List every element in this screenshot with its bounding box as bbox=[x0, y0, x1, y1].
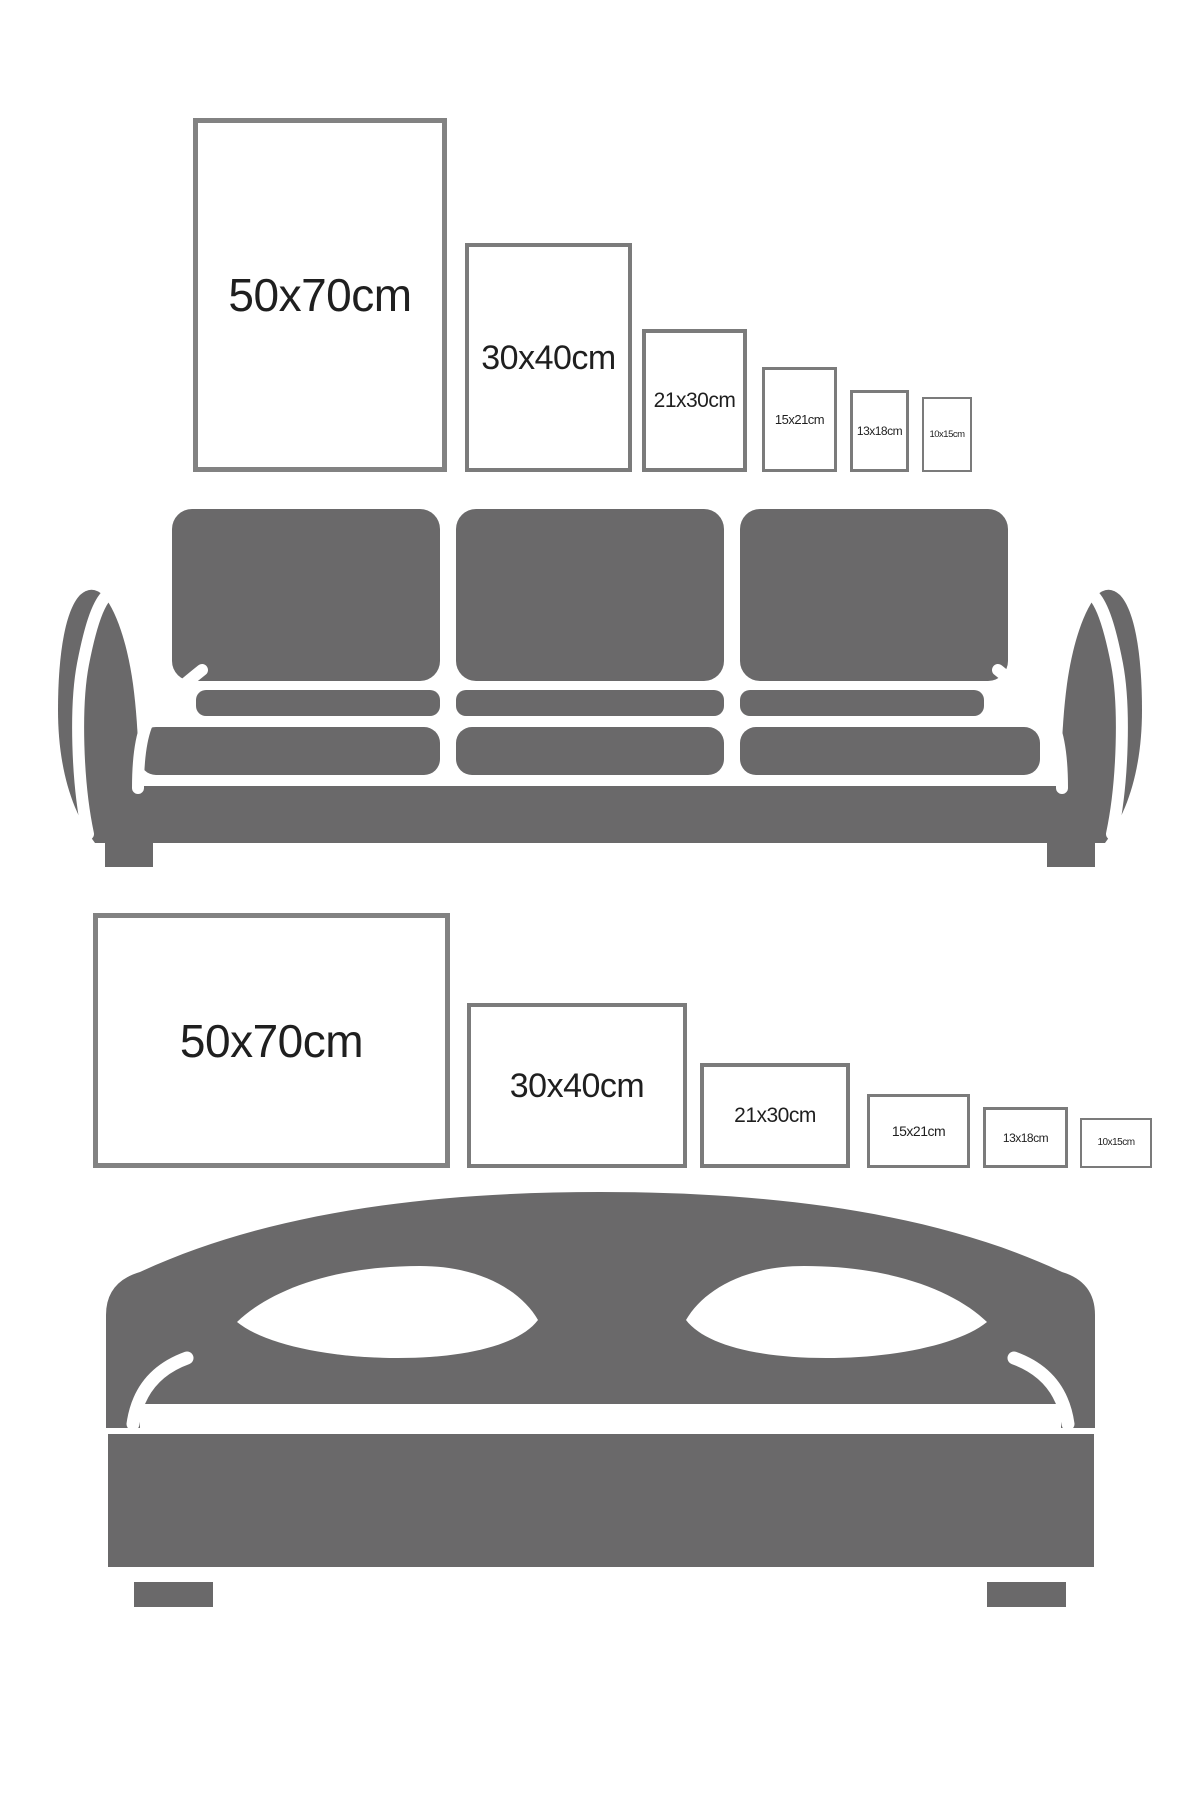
size-frame-10x15-landscape: 10x15cm bbox=[1080, 1118, 1152, 1168]
sofa-deck bbox=[456, 690, 724, 716]
size-frame-10x15-portrait: 10x15cm bbox=[922, 397, 972, 472]
frame-size-label: 13x18cm bbox=[1003, 1132, 1048, 1144]
bed-foot-right bbox=[987, 1582, 1066, 1607]
sofa-back-cushion bbox=[456, 509, 724, 681]
size-frame-30x40-landscape: 30x40cm bbox=[467, 1003, 687, 1168]
frame-size-label: 50x70cm bbox=[228, 272, 411, 318]
frame-size-label: 30x40cm bbox=[510, 1069, 644, 1103]
size-frame-21x30-portrait: 21x30cm bbox=[642, 329, 747, 472]
frame-size-label: 15x21cm bbox=[775, 413, 824, 426]
frame-size-label: 15x21cm bbox=[892, 1124, 945, 1138]
sofa-seat-cushion bbox=[740, 727, 1040, 775]
sofa-arm-right bbox=[1061, 590, 1142, 843]
frame-size-label: 21x30cm bbox=[734, 1105, 816, 1126]
sofa-base bbox=[95, 786, 1105, 843]
frame-size-label: 10x15cm bbox=[929, 430, 964, 440]
frame-size-label: 10x15cm bbox=[1097, 1138, 1134, 1148]
size-frame-15x21-landscape: 15x21cm bbox=[867, 1094, 970, 1168]
size-frame-30x40-portrait: 30x40cm bbox=[465, 243, 632, 472]
sofa-seat-cushion bbox=[140, 727, 440, 775]
size-frame-13x18-portrait: 13x18cm bbox=[850, 390, 909, 472]
sofa-arm-left bbox=[58, 590, 139, 843]
frame-size-label: 21x30cm bbox=[654, 390, 736, 411]
sofa-deck bbox=[740, 690, 984, 716]
frame-size-label: 13x18cm bbox=[857, 425, 902, 437]
frame-size-label: 50x70cm bbox=[180, 1018, 363, 1064]
size-frame-50x70-portrait: 50x70cm bbox=[193, 118, 447, 472]
sofa-back-cushion bbox=[172, 509, 440, 681]
frame-size-label: 30x40cm bbox=[481, 341, 615, 375]
size-frame-13x18-landscape: 13x18cm bbox=[983, 1107, 1068, 1168]
size-frame-50x70-landscape: 50x70cm bbox=[93, 913, 450, 1168]
sofa-deck bbox=[196, 690, 440, 716]
bed-base bbox=[108, 1434, 1094, 1567]
size-guide-canvas: 50x70cm 30x40cm 21x30cm 15x21cm 13x18cm … bbox=[0, 0, 1200, 1800]
size-frame-15x21-portrait: 15x21cm bbox=[762, 367, 837, 472]
sofa-foot-right bbox=[1047, 843, 1095, 867]
sofa-foot-left bbox=[105, 843, 153, 867]
sofa-seat-cushion bbox=[456, 727, 724, 775]
size-frame-21x30-landscape: 21x30cm bbox=[700, 1063, 850, 1168]
bed-illustration bbox=[106, 1192, 1095, 1607]
bed-foot-left bbox=[134, 1582, 213, 1607]
sofa-illustration bbox=[58, 509, 1142, 867]
sofa-back-cushion bbox=[740, 509, 1008, 681]
